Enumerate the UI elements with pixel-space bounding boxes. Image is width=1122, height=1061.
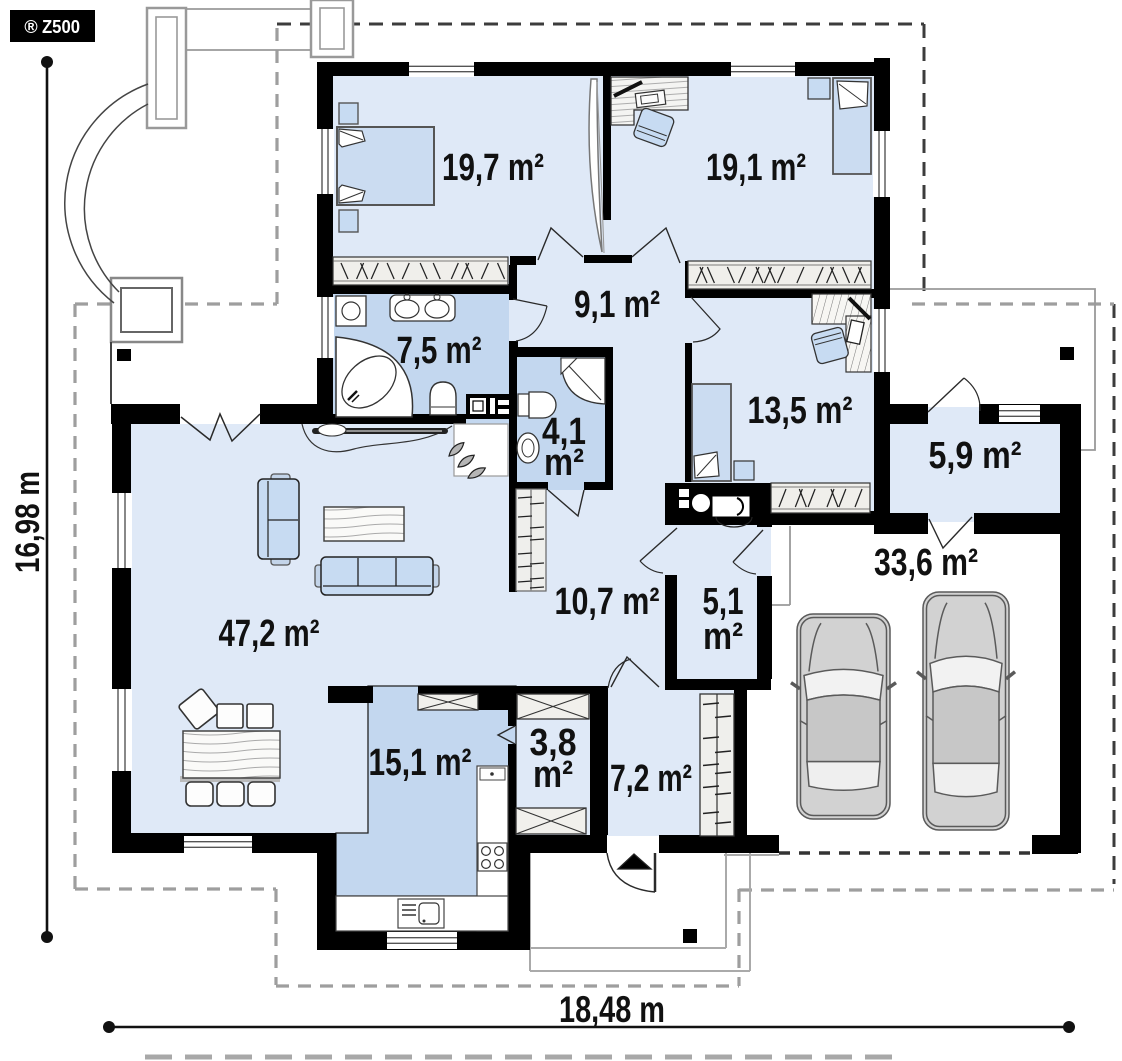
svg-text:13,5 m²: 13,5 m² [748,390,853,432]
svg-text:9,1 m²: 9,1 m² [574,284,660,326]
svg-text:m²: m² [703,616,743,658]
svg-text:18,48 m: 18,48 m [559,989,665,1030]
svg-text:®: ® [24,17,37,37]
svg-text:47,2 m²: 47,2 m² [219,613,320,655]
svg-text:19,1 m²: 19,1 m² [706,147,806,189]
svg-text:m²: m² [544,442,584,484]
svg-text:15,1 m²: 15,1 m² [369,742,472,784]
svg-text:7,2 m²: 7,2 m² [610,758,692,800]
svg-text:19,7 m²: 19,7 m² [442,147,544,189]
svg-text:5,9 m²: 5,9 m² [929,435,1022,477]
svg-text:33,6 m²: 33,6 m² [874,542,978,584]
svg-text:7,5 m²: 7,5 m² [397,330,482,372]
svg-text:16,98 m: 16,98 m [9,471,47,573]
svg-text:m²: m² [533,754,573,796]
svg-text:10,7 m²: 10,7 m² [555,581,660,623]
svg-text:Z500: Z500 [42,16,80,37]
